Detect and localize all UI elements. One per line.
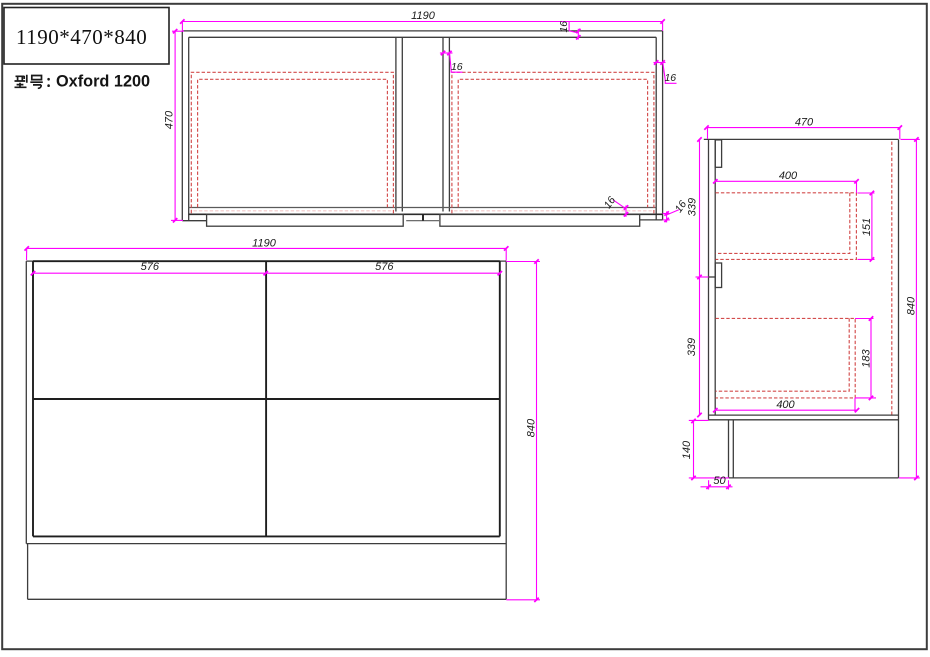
svg-text:1190: 1190: [411, 10, 436, 22]
svg-text:Oxford 1200: Oxford 1200: [56, 72, 150, 90]
svg-text:400: 400: [776, 399, 795, 411]
svg-text:16: 16: [558, 21, 570, 33]
svg-text:16: 16: [451, 61, 463, 73]
svg-text:16: 16: [664, 72, 676, 84]
svg-text:470: 470: [164, 110, 176, 129]
svg-text:183: 183: [860, 348, 872, 367]
svg-text:339: 339: [686, 198, 698, 216]
svg-text:470: 470: [795, 117, 814, 129]
svg-text:840: 840: [905, 296, 917, 315]
svg-text:1190: 1190: [252, 238, 277, 250]
svg-text:576: 576: [375, 261, 394, 273]
svg-text:576: 576: [141, 261, 160, 273]
svg-text:339: 339: [686, 338, 698, 356]
svg-text:140: 140: [681, 440, 693, 459]
svg-text:400: 400: [779, 170, 798, 182]
svg-text:151: 151: [861, 218, 873, 236]
svg-text:840: 840: [526, 418, 538, 437]
svg-text:1190*470*840: 1190*470*840: [16, 25, 147, 49]
svg-text:50: 50: [713, 475, 726, 487]
